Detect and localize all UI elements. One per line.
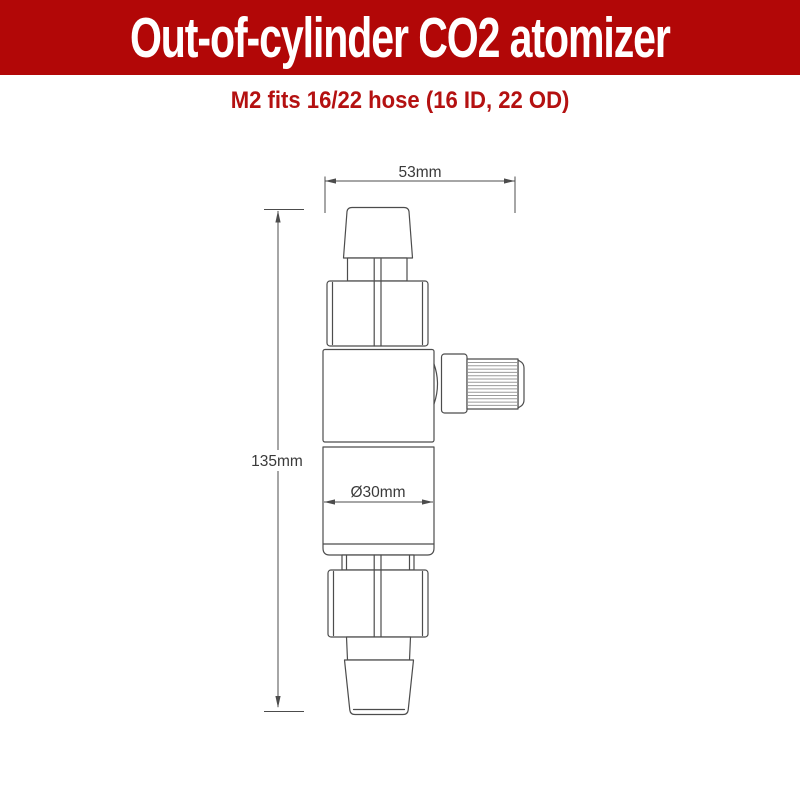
side-adjust-knob <box>434 354 524 413</box>
knob-end-cap <box>518 360 524 408</box>
arrow-left-icon <box>325 178 336 183</box>
knob-collar <box>442 354 468 413</box>
atomizer-drawing <box>323 208 524 715</box>
arrow-down-icon <box>275 696 280 708</box>
top-hose-barb <box>344 208 413 282</box>
atomizer-chamber <box>323 447 434 555</box>
header-banner: Out-of-cylinder CO2 atomizer <box>0 0 800 75</box>
arrow-right-icon <box>504 178 515 183</box>
lower-neck <box>342 555 414 570</box>
dimension-width-label: 53mm <box>398 164 441 181</box>
knob-knurl-body <box>467 359 518 409</box>
subtitle-text: M2 fits 16/22 hose (16 ID, 22 OD) <box>231 87 570 115</box>
dimension-height: 135mm <box>251 210 305 712</box>
subtitle-bar: M2 fits 16/22 hose (16 ID, 22 OD) <box>0 84 800 118</box>
bottom-hose-barb <box>345 637 414 715</box>
product-diagram: 53mm 135mm Ø30mm <box>240 150 540 745</box>
page-title: Out-of-cylinder CO2 atomizer <box>130 5 670 71</box>
arrow-up-icon <box>275 211 280 223</box>
top-compression-nut <box>327 281 428 346</box>
bottom-compression-nut <box>328 570 428 637</box>
dimension-height-label: 135mm <box>251 453 303 470</box>
valve-body <box>323 350 434 443</box>
dimension-diameter-label: Ø30mm <box>350 484 405 501</box>
dimension-width: 53mm <box>325 164 515 213</box>
